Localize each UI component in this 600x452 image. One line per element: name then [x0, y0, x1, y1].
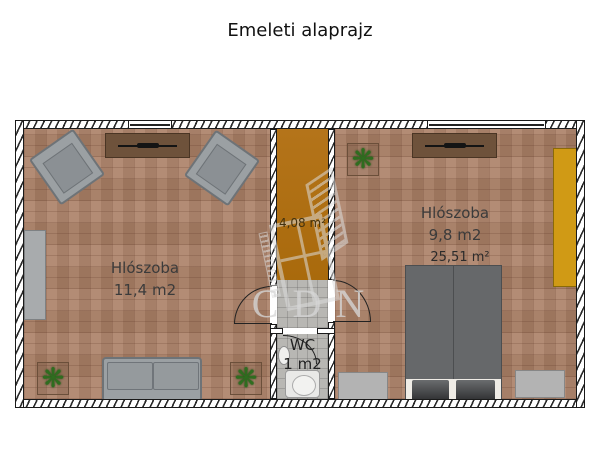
tv-cabinet-right	[412, 133, 497, 158]
plant: ❋	[347, 143, 379, 176]
tv-cabinet-left	[105, 133, 190, 158]
plant-icon: ❋	[235, 365, 258, 392]
stair-corridor-floor	[277, 129, 328, 280]
window-left-room	[128, 120, 172, 129]
nightstand-right	[515, 370, 565, 398]
wc-wall-left-stub	[270, 328, 283, 334]
stairs-area-label: 4,08 m²	[270, 216, 335, 230]
window-pane-line	[429, 124, 544, 126]
pillow	[412, 380, 449, 401]
wardrobe-gray	[24, 230, 46, 320]
sofa	[102, 357, 202, 402]
plant-icon: ❋	[352, 146, 375, 173]
left-room-area: 11,4 m2	[85, 280, 205, 302]
window-pane-line	[130, 124, 170, 126]
armchair-left-seat	[43, 143, 94, 194]
plant: ❋	[37, 362, 69, 395]
pillow	[456, 380, 495, 401]
plant: ❋	[230, 362, 262, 395]
wc-wall-right-stub	[317, 328, 335, 334]
left-room-label: Hlószoba 11,4 m2	[85, 258, 205, 302]
double-bed	[405, 265, 502, 403]
sofa-cushion	[107, 362, 153, 390]
toilet	[285, 370, 320, 398]
left-room-name: Hlószoba	[85, 258, 205, 280]
right-room-name: Hlószoba	[395, 203, 515, 225]
right-room-label: Hlószoba 9,8 m2	[395, 203, 515, 247]
toilet-bowl	[292, 375, 316, 396]
landing-floor	[277, 280, 328, 328]
tv-right	[444, 143, 466, 148]
right-room-area: 9,8 m2	[395, 225, 515, 247]
corridor-right-wall-upper	[328, 129, 335, 280]
nightstand-left	[338, 372, 388, 400]
tv-left	[137, 143, 159, 148]
wc-area: 1 m2	[275, 355, 330, 374]
floor-plan: ❋ ❋ Hlószoba 11,4 m2 ❋ Hlószoba 9,8 m2 2…	[15, 120, 585, 408]
page-title: Emeleti alaprajz	[0, 20, 600, 41]
wc-label: WC 1 m2	[275, 336, 330, 374]
sofa-cushion	[153, 362, 199, 390]
wall-bottom	[15, 399, 585, 408]
window-right-room	[427, 120, 546, 129]
wardrobe-orange	[553, 148, 578, 287]
wc-name: WC	[275, 336, 330, 355]
right-room-total-area: 25,51 m²	[405, 250, 515, 265]
corridor-left-wall-upper	[270, 129, 277, 286]
wall-right	[576, 120, 585, 408]
wall-left	[15, 120, 24, 408]
plant-icon: ❋	[42, 365, 65, 392]
armchair-right-seat	[196, 144, 247, 195]
